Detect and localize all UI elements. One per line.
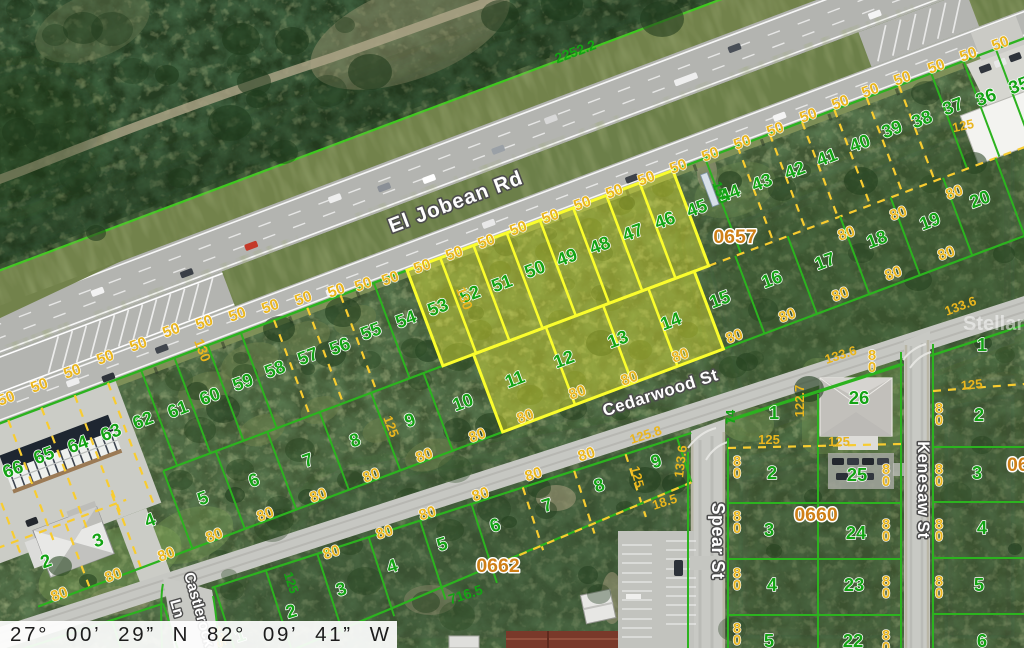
svg-text:125: 125 xyxy=(828,434,850,449)
svg-text:25: 25 xyxy=(847,464,868,485)
svg-text:5: 5 xyxy=(974,574,984,595)
svg-text:122.7: 122.7 xyxy=(792,385,807,418)
svg-text:125: 125 xyxy=(960,376,983,393)
svg-text:74: 74 xyxy=(723,409,738,424)
svg-text:0: 0 xyxy=(935,528,943,545)
svg-text:5: 5 xyxy=(764,630,774,648)
svg-text:0: 0 xyxy=(882,528,890,545)
svg-text:3: 3 xyxy=(972,462,982,483)
svg-text:Spear St: Spear St xyxy=(708,502,728,579)
svg-text:1: 1 xyxy=(977,334,987,355)
svg-text:0663: 0663 xyxy=(1007,454,1024,476)
svg-text:1: 1 xyxy=(769,402,779,423)
svg-text:0: 0 xyxy=(882,473,890,490)
svg-text:0662: 0662 xyxy=(476,555,520,577)
svg-text:0: 0 xyxy=(935,585,943,602)
svg-text:0660: 0660 xyxy=(794,504,838,526)
svg-text:0: 0 xyxy=(935,412,943,429)
svg-text:0: 0 xyxy=(882,639,890,648)
svg-text:2: 2 xyxy=(974,404,984,425)
svg-text:24: 24 xyxy=(846,522,867,543)
svg-text:0: 0 xyxy=(935,473,943,490)
svg-text:23: 23 xyxy=(844,574,865,595)
svg-text:0657: 0657 xyxy=(713,226,756,248)
svg-text:0: 0 xyxy=(733,632,741,648)
svg-text:27° 00’ 29” N 82° 09’ 41: 27° 00’ 29” N 82° 09’ 41” W xyxy=(10,623,392,646)
svg-text:0: 0 xyxy=(733,520,741,537)
svg-text:22: 22 xyxy=(843,630,864,648)
svg-text:4: 4 xyxy=(767,574,778,595)
svg-text:Kenesaw St: Kenesaw St xyxy=(914,441,932,539)
svg-text:0: 0 xyxy=(882,585,890,602)
svg-text:6: 6 xyxy=(977,630,987,648)
svg-text:0: 0 xyxy=(868,359,876,376)
svg-text:2: 2 xyxy=(767,462,777,483)
svg-text:0: 0 xyxy=(733,465,741,482)
svg-text:4: 4 xyxy=(977,517,988,538)
svg-text:26: 26 xyxy=(849,387,870,408)
svg-text:3: 3 xyxy=(764,519,774,540)
svg-text:125: 125 xyxy=(758,432,780,447)
svg-text:0: 0 xyxy=(733,577,741,594)
svg-text:StellarMLS: StellarMLS xyxy=(963,313,1024,335)
